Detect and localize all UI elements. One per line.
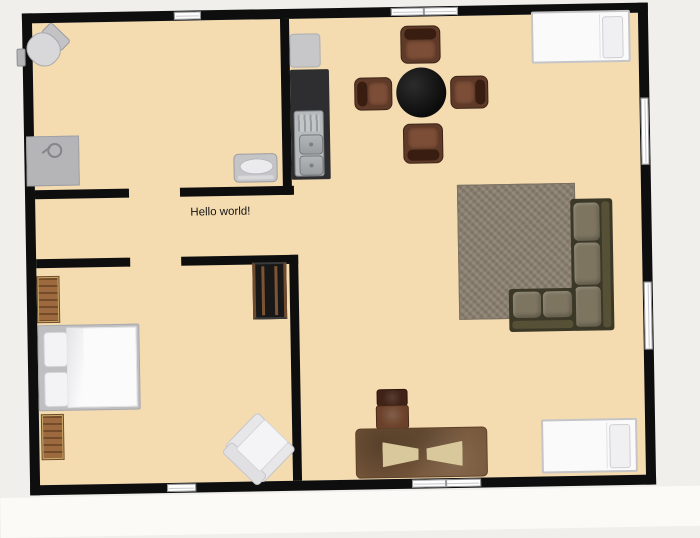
canvas: Hello world! [0,0,700,500]
desk-inlay [382,442,418,468]
dining-chair-west[interactable] [354,77,393,111]
chair-seat [368,82,388,105]
fridge[interactable] [289,33,321,68]
window-top-right[interactable] [391,7,458,16]
window-right-lower[interactable] [644,282,653,350]
dining-chair-north[interactable] [400,25,441,64]
desk[interactable] [355,426,488,478]
basin-bowl [239,158,273,175]
chair-seat [405,40,435,60]
sofa-cushion [575,286,602,326]
wardrobe-shelf-line [261,266,265,315]
duvet-fold [67,328,84,406]
chair-back [357,81,367,106]
bench-bottom[interactable] [42,415,64,459]
kitchen-sink[interactable] [294,110,325,177]
window-sill [176,15,199,16]
office-chair-back [376,389,407,407]
floor-plan: Hello world! [22,3,656,496]
dining-chair-east[interactable] [450,75,489,109]
sheet-seam [606,422,608,468]
shower-tray[interactable] [26,136,80,187]
desk-inlay [426,441,462,467]
sofa-cushion [573,202,600,240]
sofa-cushion [574,242,601,284]
pillow [602,16,624,58]
window-sill [648,284,650,348]
wall-bedroom-north-a [36,258,130,269]
annotation-label[interactable]: Hello world! [190,206,250,219]
wall-bathroom-south-a [35,189,129,200]
sheet-seam [599,14,601,58]
chair-back [475,79,485,104]
window-bottom-left[interactable] [167,484,196,493]
corner-sofa-vertical[interactable] [570,198,614,331]
sofa-cushion [543,291,572,318]
basin-ledge [238,175,274,180]
office-chair[interactable] [374,389,410,430]
chair-back [407,149,439,161]
window-bottom-right[interactable] [412,479,481,488]
office-chair-seat [376,405,409,430]
sink-drainboard [298,114,320,131]
window-divider [423,8,425,14]
single-bed-top-right[interactable] [531,10,631,64]
sofa-backrest [601,201,611,327]
chair-seat [454,81,474,104]
pillow [44,372,69,407]
wardrobe[interactable] [252,262,287,320]
single-bed-bottom-right[interactable] [541,418,638,474]
sofa-backrest [512,320,573,329]
dining-chair-south[interactable] [403,123,444,164]
chair-back [404,28,436,40]
double-bed[interactable] [37,323,140,411]
pillow [609,424,631,468]
wardrobe-shelf-line [274,266,278,315]
sink-basin [299,134,323,154]
window-divider [445,480,447,486]
corner-sofa-horizontal[interactable] [509,288,577,332]
chair-seat [408,127,438,149]
pillow [43,332,68,367]
bench-top[interactable] [37,277,59,322]
sofa-cushion [513,291,541,317]
wash-basin[interactable] [233,153,277,183]
window-sill [169,488,194,489]
window-top-left[interactable] [174,11,201,19]
duvet [66,327,137,408]
window-right-upper[interactable] [640,98,649,165]
window-sill [644,100,646,163]
sink-basin [299,155,323,175]
